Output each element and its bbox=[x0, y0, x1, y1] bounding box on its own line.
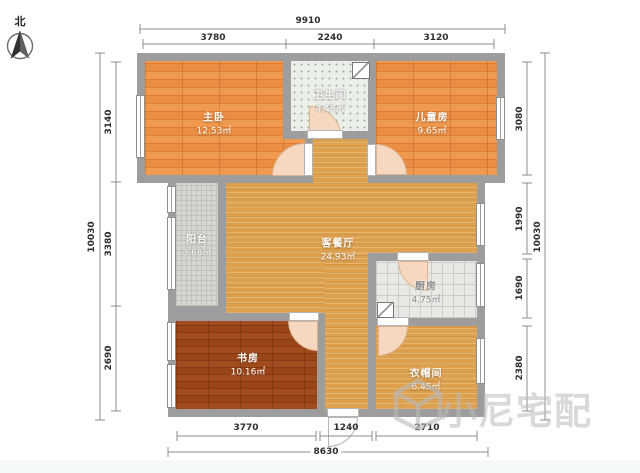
dim-right-seg-1: 3080 bbox=[515, 106, 525, 131]
dim-bottom-seg-3: 2710 bbox=[414, 423, 439, 433]
dim-top-seg-2: 2240 bbox=[317, 33, 342, 43]
dim-top-seg-3: 3120 bbox=[423, 33, 448, 43]
dim-left-total: 10030 bbox=[87, 221, 97, 252]
dim-left-seg-1: 3140 bbox=[104, 109, 114, 134]
compass-icon bbox=[6, 28, 36, 62]
dim-top-total: 9910 bbox=[295, 16, 320, 26]
floor-plan-canvas: 主卧 12.53㎡ 卫生间 4.45㎡ 儿童房 9.65㎡ 阳台 3.68㎡ 客… bbox=[0, 0, 640, 473]
dim-bottom-total: 8630 bbox=[310, 447, 341, 457]
dim-right-seg-4: 2380 bbox=[515, 355, 525, 380]
dim-right-total: 10030 bbox=[533, 221, 543, 252]
north-label: 北 bbox=[15, 13, 26, 29]
bottom-strip bbox=[0, 460, 640, 473]
dim-left-seg-3: 2690 bbox=[104, 345, 114, 370]
dim-right-seg-2: 1990 bbox=[515, 206, 525, 231]
dim-left-seg-2: 3380 bbox=[104, 231, 114, 256]
dim-top-seg-1: 3780 bbox=[200, 33, 225, 43]
dim-bottom-seg-2: 1240 bbox=[333, 423, 358, 433]
dim-bottom-seg-1: 3770 bbox=[233, 423, 258, 433]
dim-right-seg-3: 1690 bbox=[515, 275, 525, 300]
